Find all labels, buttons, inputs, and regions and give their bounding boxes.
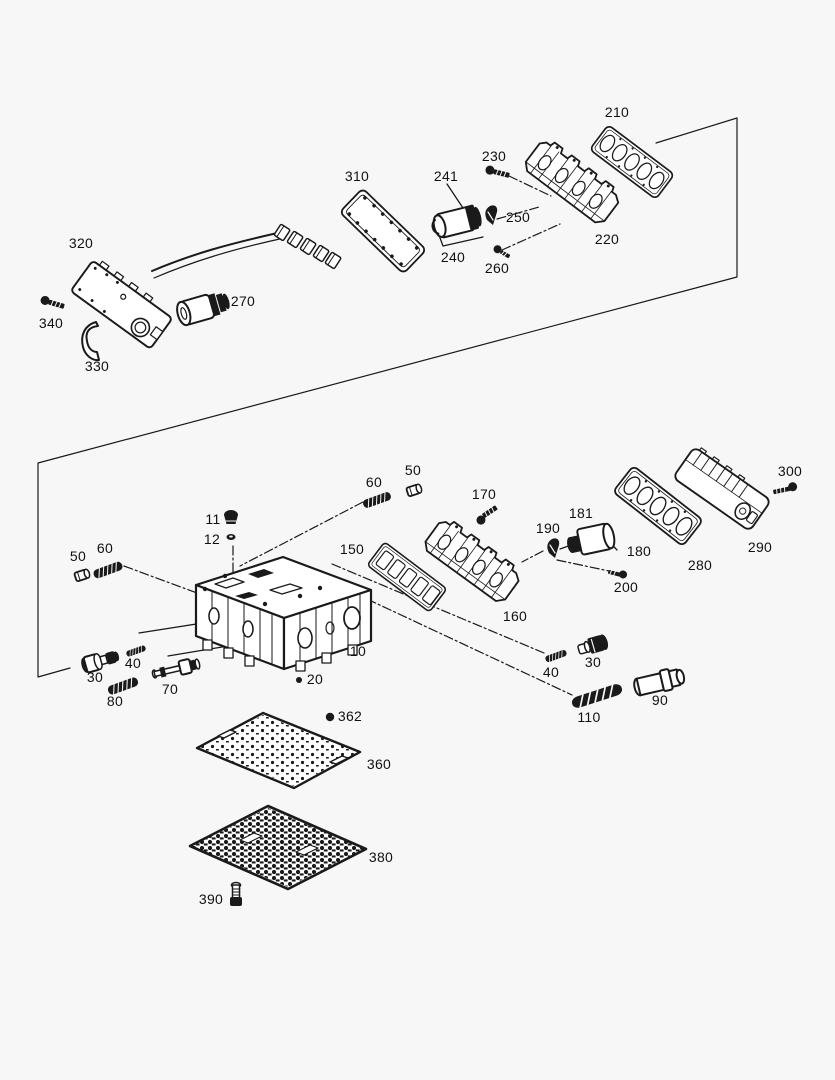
part-12-seal [227,534,236,540]
parts-diagram-art [0,0,835,1080]
part-20-ball [296,677,302,683]
part-90-spool [632,666,686,698]
part-40-spring-left [126,645,147,657]
part-190-retainer [547,538,559,558]
part-362-ball [326,713,334,721]
part-250-retainer [485,205,497,225]
part-270-solenoid [175,289,233,327]
part-240-solenoid [430,203,484,239]
part-170-bolt [474,505,500,527]
part-11-cap [224,510,238,524]
part-110-spring [571,683,624,710]
part-30-spool-right [576,633,609,657]
part-30-spool-left [80,648,121,674]
part-390-bolt [230,883,242,907]
part-50-plug-right [406,484,423,497]
part-330-clip [82,322,99,360]
part-300-bolt [772,481,798,495]
part-60-spring-left [92,561,123,580]
part-40-spring-right [545,649,568,663]
part-340-bolt [39,295,65,310]
part-230-bolt [485,165,511,180]
part-260-bolt [492,244,512,260]
part-60-spring-right [362,491,392,509]
part-360-separator-plate [197,713,360,788]
circuit-strip [152,224,341,278]
exploded-parts-diagram-page: 2102302413102502202402603202703403303002… [0,0,835,1080]
part-380-lower-valve-body [190,806,366,889]
part-200-bolt [608,567,628,579]
part-50-plug-left [74,569,91,582]
part-70-valve [151,657,201,681]
part-80-spring [107,676,140,695]
perspective-frame-line [38,118,737,677]
part-181-solenoid [565,522,617,557]
part-310-gasket [340,188,427,273]
part-10-main-valve-body [196,557,371,671]
